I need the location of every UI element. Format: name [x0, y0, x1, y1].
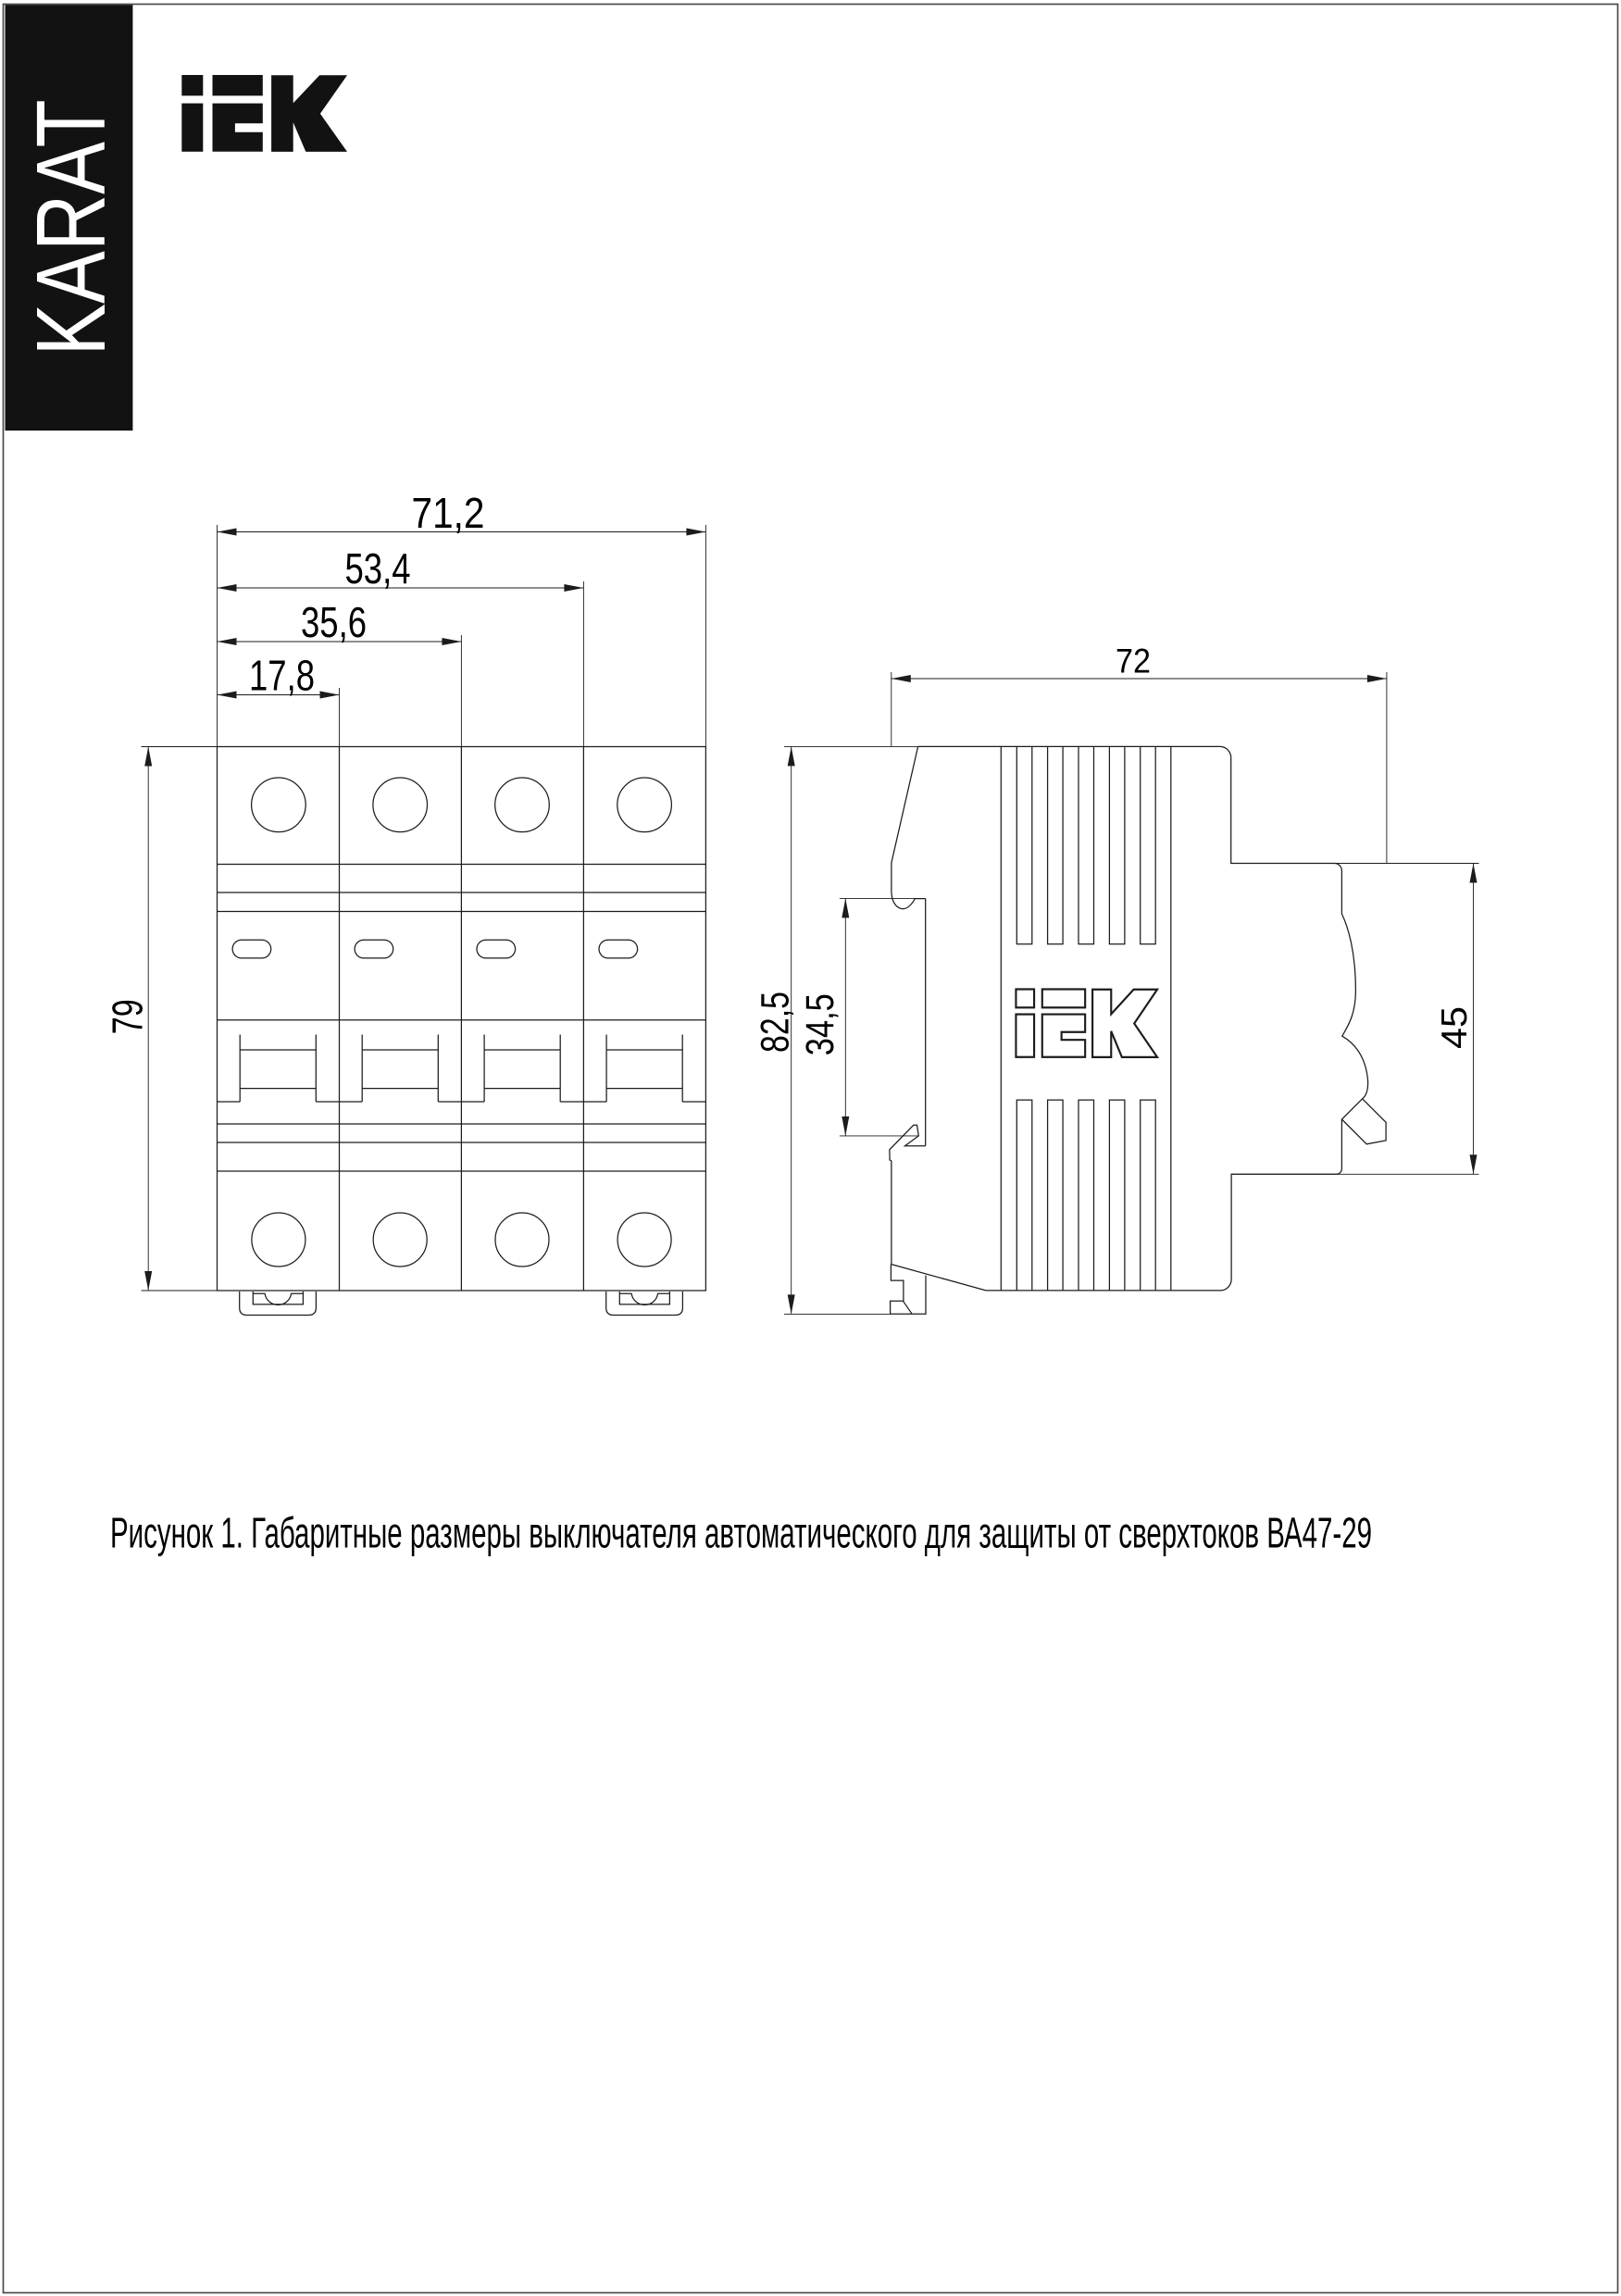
- svg-text:82,5: 82,5: [754, 992, 798, 1053]
- svg-text:KARAT: KARAT: [17, 100, 126, 356]
- svg-text:79: 79: [103, 999, 151, 1034]
- svg-text:53,4: 53,4: [345, 544, 411, 593]
- svg-text:72: 72: [1116, 643, 1151, 680]
- svg-text:45: 45: [1435, 1006, 1475, 1049]
- svg-text:71,2: 71,2: [412, 489, 485, 537]
- svg-text:Рисунок 1. Габаритные размеры: Рисунок 1. Габаритные размеры выключател…: [110, 1509, 1372, 1557]
- svg-text:35,6: 35,6: [301, 598, 367, 646]
- svg-text:34,5: 34,5: [798, 993, 842, 1055]
- svg-text:17,8: 17,8: [249, 652, 315, 700]
